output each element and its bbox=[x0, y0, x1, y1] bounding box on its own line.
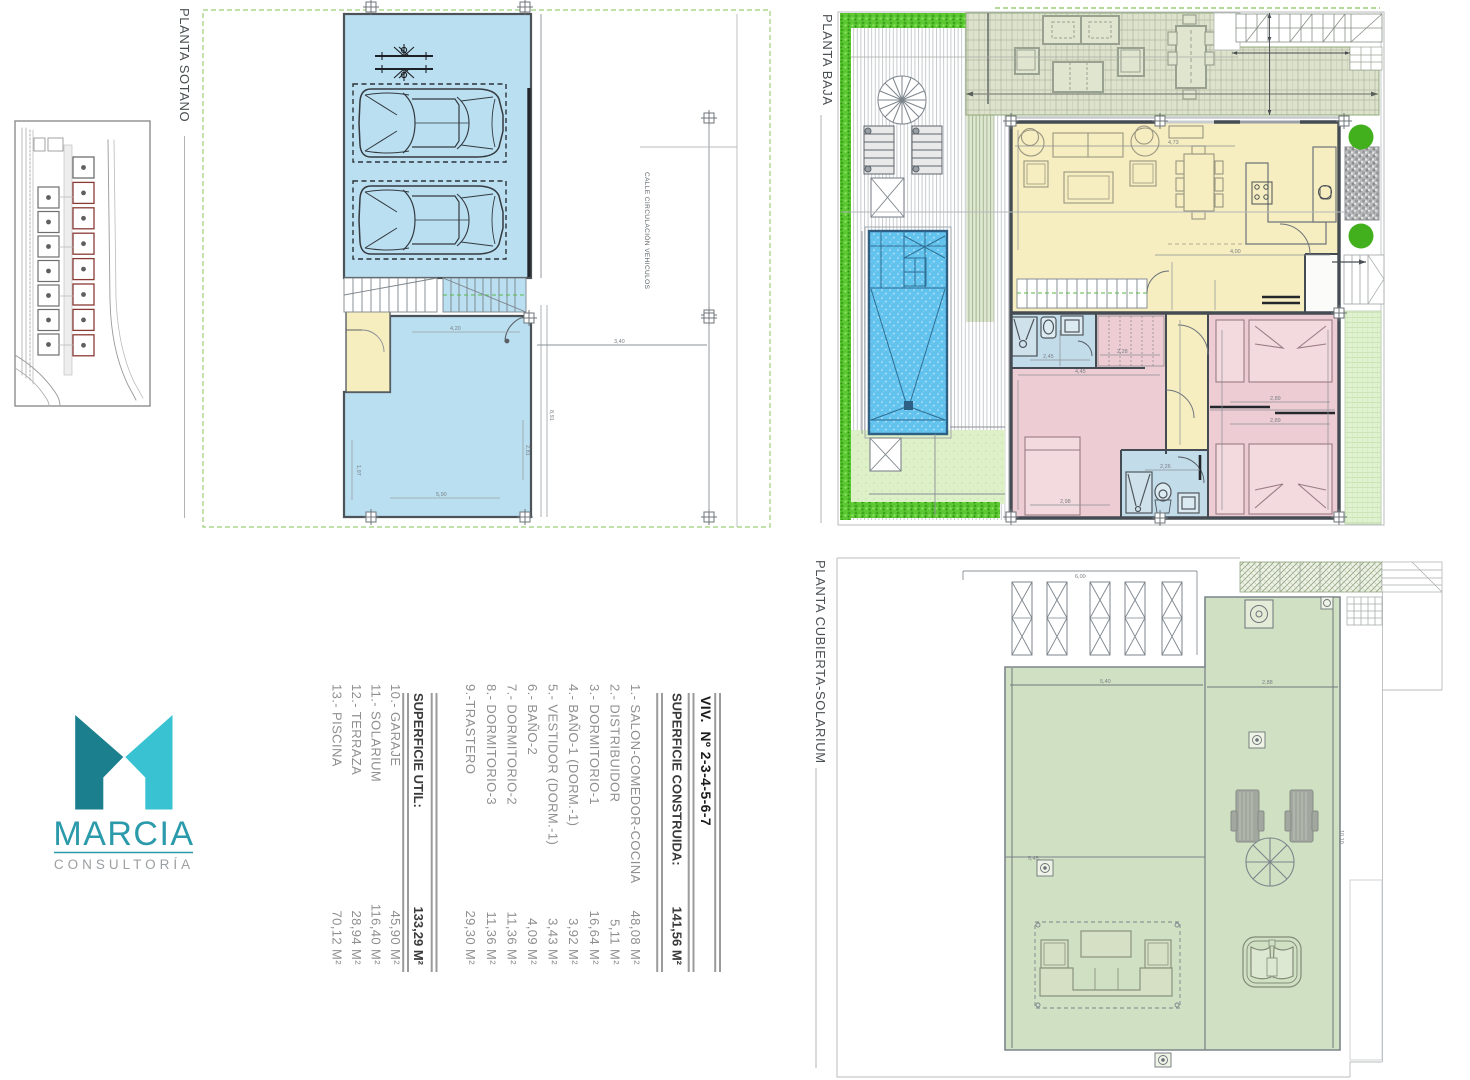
svg-text:5,90: 5,90 bbox=[436, 492, 447, 498]
svg-text:7.- DORMITORIO-2: 7.- DORMITORIO-2 bbox=[504, 684, 519, 805]
svg-text:48,08 M²: 48,08 M² bbox=[628, 910, 643, 965]
svg-text:2,89: 2,89 bbox=[1270, 396, 1281, 402]
svg-text:8.- DORMITORIO-3: 8.- DORMITORIO-3 bbox=[484, 684, 499, 805]
svg-text:3,40: 3,40 bbox=[614, 339, 625, 345]
svg-text:6.- BAÑO-2: 6.- BAÑO-2 bbox=[525, 684, 540, 755]
svg-text:141,56 M²: 141,56 M² bbox=[670, 906, 685, 965]
svg-text:8,91: 8,91 bbox=[548, 410, 554, 421]
svg-text:VIV. Nº 2-3-4-5-6-7: VIV. Nº 2-3-4-5-6-7 bbox=[698, 696, 714, 826]
svg-text:2,26: 2,26 bbox=[1160, 464, 1171, 470]
svg-text:1.- SALON-COMEDOR-COCINA: 1.- SALON-COMEDOR-COCINA bbox=[628, 684, 643, 884]
svg-text:4,20: 4,20 bbox=[450, 326, 461, 332]
svg-text:1,97: 1,97 bbox=[355, 465, 361, 476]
svg-text:11,36 M²: 11,36 M² bbox=[484, 911, 499, 965]
svg-text:116,40 M²: 116,40 M² bbox=[369, 904, 384, 965]
svg-text:45,90 M²: 45,90 M² bbox=[388, 910, 403, 965]
svg-text:28,94 M²: 28,94 M² bbox=[349, 910, 364, 965]
svg-text:CALLE CIRCULACIÓN VEHICULOS: CALLE CIRCULACIÓN VEHICULOS bbox=[643, 172, 652, 290]
svg-text:12.- TERRAZA: 12.- TERRAZA bbox=[349, 684, 364, 775]
svg-text:PLANTA CUBIERTA-SOLARIUM: PLANTA CUBIERTA-SOLARIUM bbox=[813, 560, 828, 764]
svg-text:29,30 M²: 29,30 M² bbox=[463, 910, 478, 965]
svg-text:10,10: 10,10 bbox=[1338, 830, 1344, 844]
svg-text:4,09 M²: 4,09 M² bbox=[525, 918, 540, 965]
svg-text:11.- SOLARIUM: 11.- SOLARIUM bbox=[369, 684, 384, 782]
svg-text:70,12 M²: 70,12 M² bbox=[330, 910, 345, 965]
svg-text:2,98: 2,98 bbox=[1060, 499, 1071, 505]
svg-text:3,43 M²: 3,43 M² bbox=[546, 918, 561, 965]
svg-text:11,36 M²: 11,36 M² bbox=[504, 911, 519, 965]
svg-text:4,73: 4,73 bbox=[1168, 140, 1179, 146]
svg-text:4,00: 4,00 bbox=[1230, 249, 1241, 255]
svg-text:133,29 M²: 133,29 M² bbox=[411, 906, 426, 965]
svg-text:2,81: 2,81 bbox=[524, 445, 530, 456]
svg-text:5,45: 5,45 bbox=[1028, 856, 1039, 862]
svg-text:PLANTA SOTANO: PLANTA SOTANO bbox=[177, 8, 192, 122]
svg-text:2,45: 2,45 bbox=[1043, 354, 1054, 360]
svg-text:13.- PISCINA: 13.- PISCINA bbox=[330, 684, 345, 767]
svg-text:6,00: 6,00 bbox=[1075, 574, 1086, 580]
svg-text:MARCIA: MARCIA bbox=[53, 815, 194, 853]
svg-text:5,11 M²: 5,11 M² bbox=[607, 919, 622, 965]
svg-text:4.- BAÑO-1 (DORM.-1): 4.- BAÑO-1 (DORM.-1) bbox=[566, 684, 581, 826]
svg-text:9.-TRASTERO: 9.-TRASTERO bbox=[463, 684, 478, 774]
svg-text:2,28: 2,28 bbox=[1117, 349, 1128, 355]
svg-text:5.- VESTIDOR (DORM.-1): 5.- VESTIDOR (DORM.-1) bbox=[546, 684, 561, 845]
svg-text:5,40: 5,40 bbox=[1100, 679, 1111, 685]
svg-text:3.- DORMITORIO-1: 3.- DORMITORIO-1 bbox=[587, 684, 602, 805]
svg-text:SUPERFICIE CONSTRUIDA:: SUPERFICIE CONSTRUIDA: bbox=[670, 693, 685, 866]
svg-text:2,88: 2,88 bbox=[1262, 680, 1273, 686]
svg-text:2.- DISTRIBUIDOR: 2.- DISTRIBUIDOR bbox=[607, 684, 622, 802]
svg-text:10.- GARAJE: 10.- GARAJE bbox=[388, 684, 403, 766]
svg-text:CONSULTORÍA: CONSULTORÍA bbox=[54, 857, 194, 872]
svg-text:2,89: 2,89 bbox=[1270, 418, 1281, 424]
svg-text:4,45: 4,45 bbox=[1075, 369, 1086, 375]
svg-text:3,92 M²: 3,92 M² bbox=[566, 918, 581, 965]
svg-text:16,64 M²: 16,64 M² bbox=[587, 910, 602, 965]
svg-text:PLANTA BAJA: PLANTA BAJA bbox=[820, 14, 835, 106]
svg-text:SUPERFICIE UTIL:: SUPERFICIE UTIL: bbox=[411, 693, 426, 808]
